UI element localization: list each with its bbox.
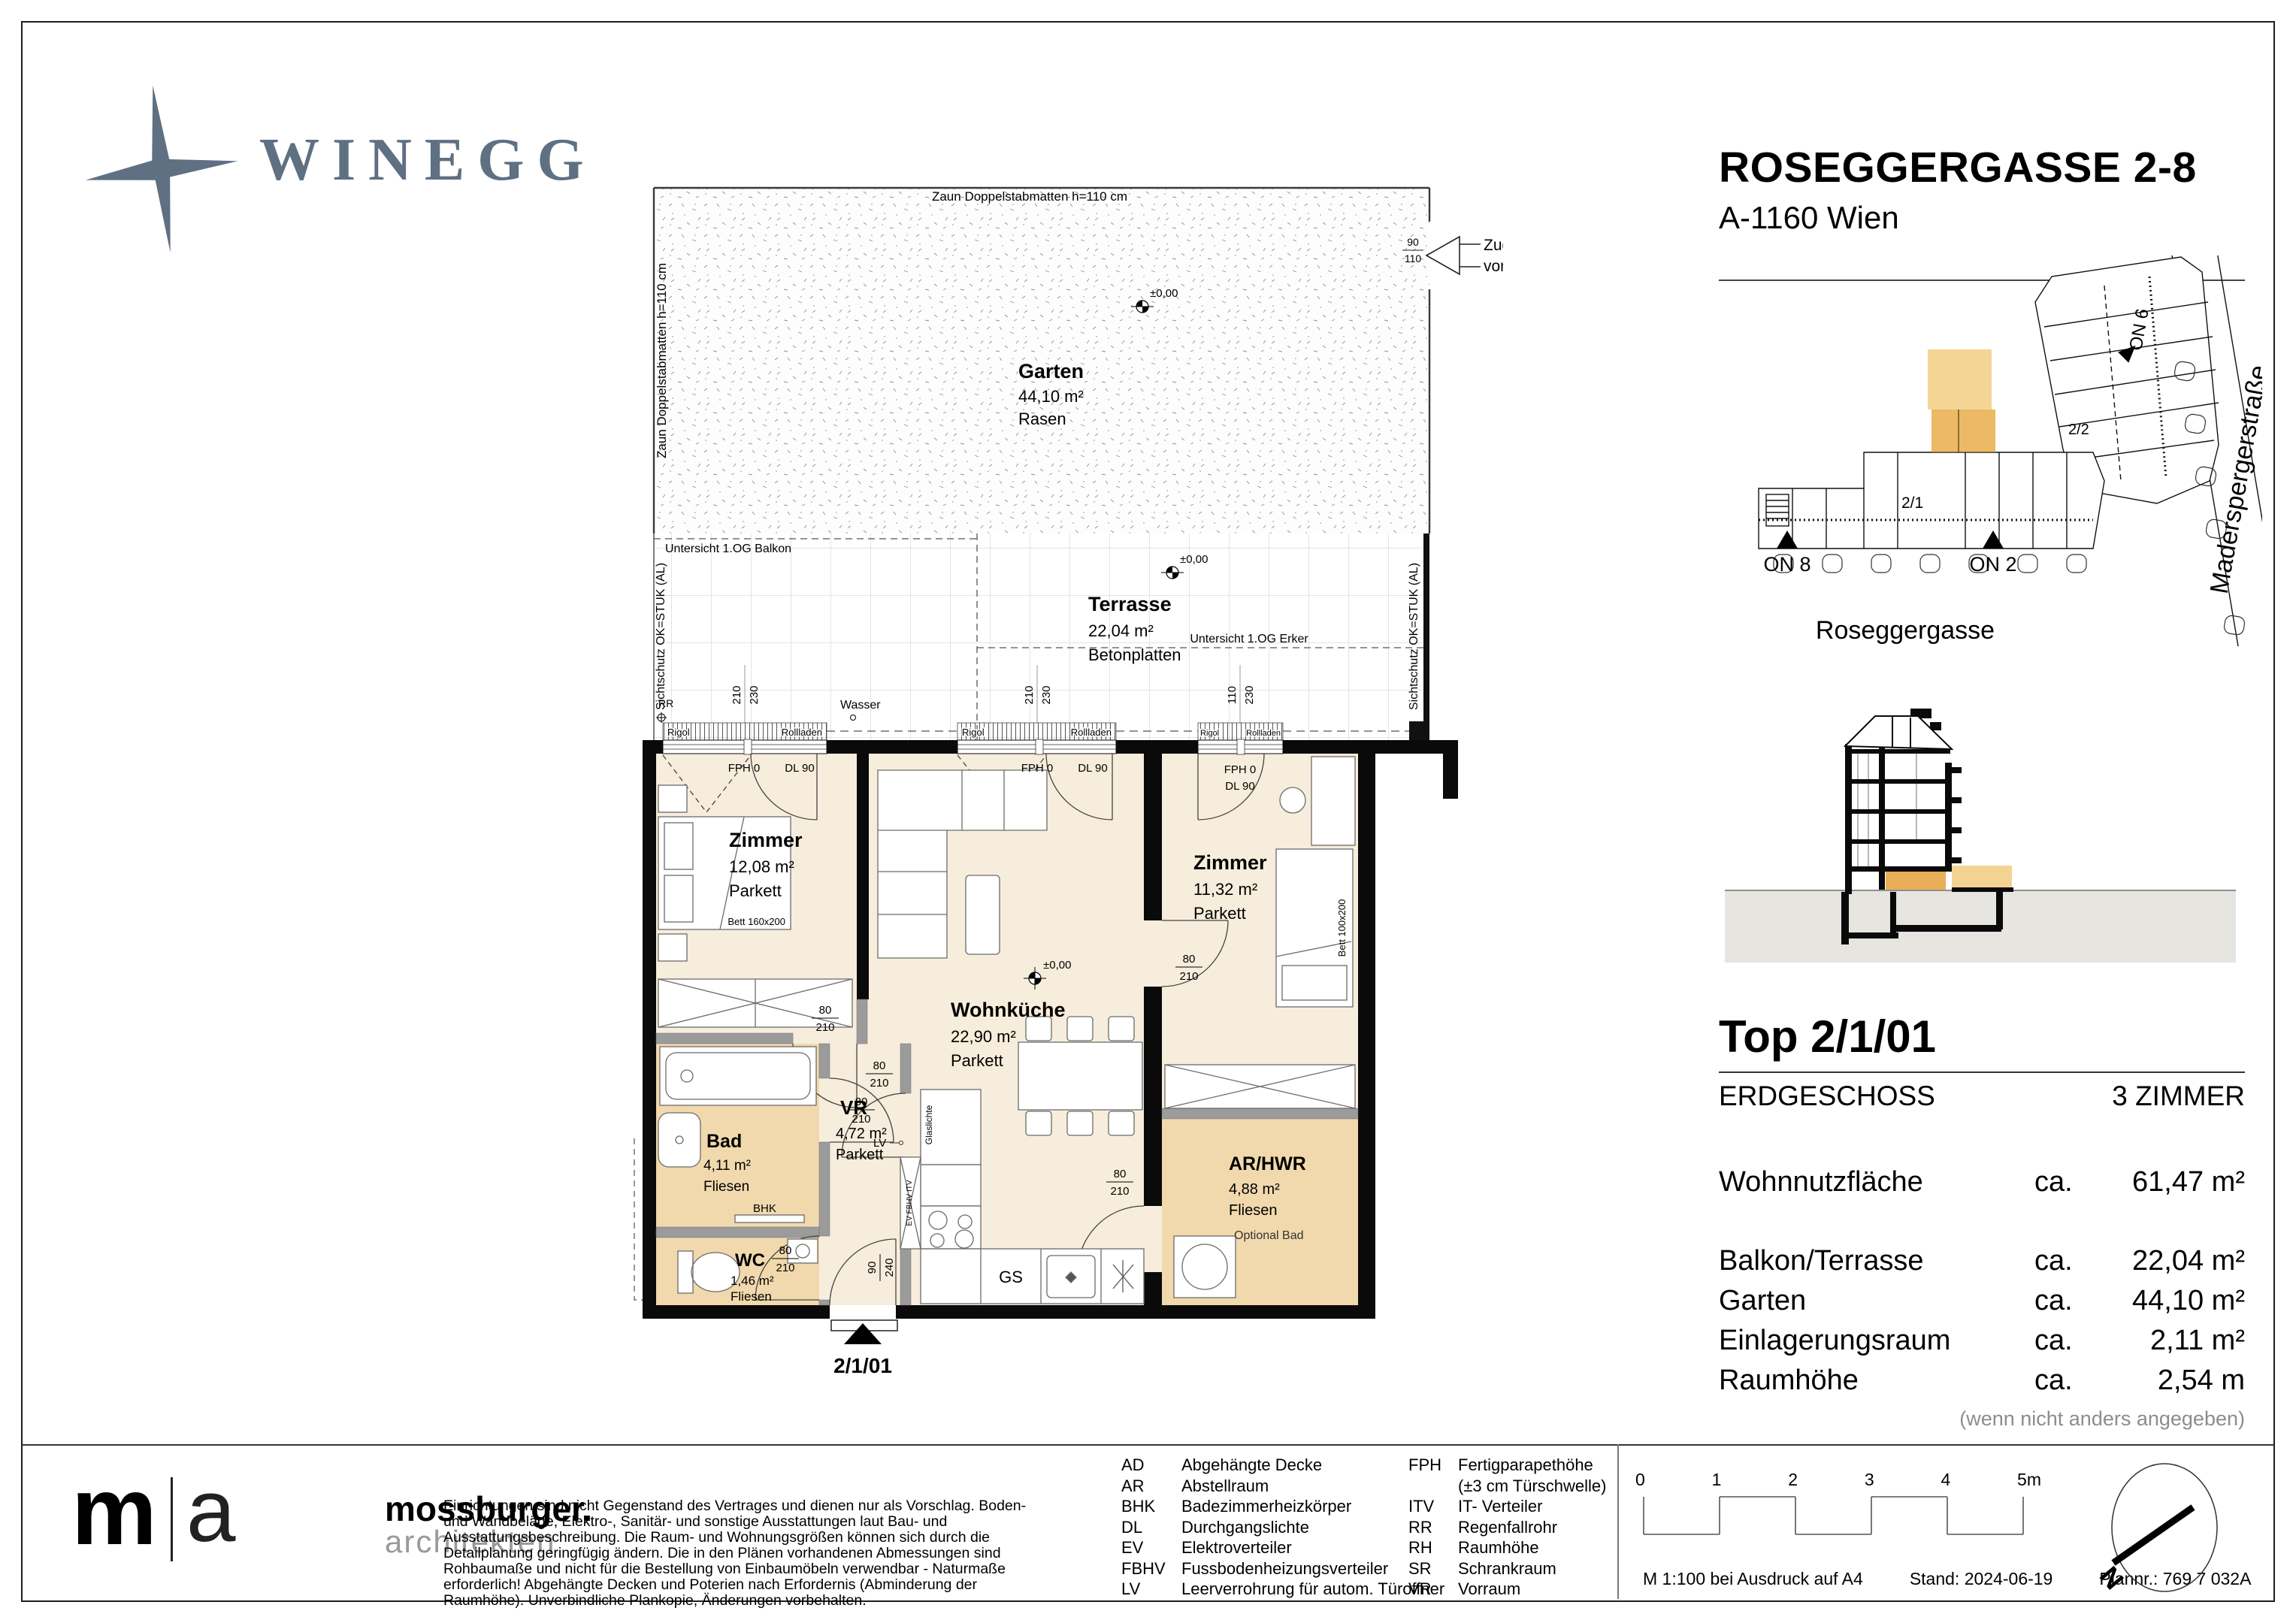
info-label: Balkon/Terrasse xyxy=(1719,1245,2034,1277)
site-unit-garden-highlight xyxy=(1928,349,1992,410)
lv-label: LV xyxy=(873,1137,886,1150)
access-dim-bottom: 110 xyxy=(1405,252,1422,264)
north-arrow: N xyxy=(2082,1456,2247,1599)
info-ca: ca. xyxy=(2034,1285,2102,1317)
svg-text:80: 80 xyxy=(819,1004,832,1017)
unit-roomcount: 3 ZIMMER xyxy=(2112,1080,2245,1112)
legend-text: Fussbodenheizungsverteiler xyxy=(1181,1558,1388,1579)
info-value: 2,54 m xyxy=(2102,1365,2245,1397)
svg-text:210: 210 xyxy=(870,1077,888,1090)
fph-label: FPH 0 xyxy=(1021,762,1054,775)
architect-logo: m a xyxy=(71,1474,235,1561)
info-label: Garten xyxy=(1719,1285,2034,1317)
site-unit21-label: 2/1 xyxy=(1901,494,1923,512)
sichtschutz-left-label: Sichtschutz OK=STUK (AL) xyxy=(655,563,667,710)
z2-surface: Parkett xyxy=(1193,904,1246,923)
rigol-label: Rigol xyxy=(667,727,690,738)
project-title: ROSEGGERGASSE 2-8 xyxy=(1719,143,2245,192)
untersicht-erker-label: Untersicht 1.OG Erker xyxy=(1190,633,1308,645)
info-value: 2,11 m² xyxy=(2102,1325,2245,1357)
info-value: 44,10 m² xyxy=(2102,1285,2245,1317)
z1-surface: Parkett xyxy=(729,881,782,900)
svg-text:230: 230 xyxy=(1243,685,1256,704)
section-unit-highlight xyxy=(1886,871,1946,890)
info-ca: ca. xyxy=(2034,1365,2102,1397)
terrace-title: Terrasse xyxy=(1088,593,1172,615)
wk-surface: Parkett xyxy=(951,1051,1003,1070)
legend-text: Badezimmerheizkörper xyxy=(1181,1496,1351,1517)
svg-text:80: 80 xyxy=(1114,1168,1127,1180)
legend-abbr: RR xyxy=(1408,1517,1458,1538)
architect-logo-a: a xyxy=(186,1474,236,1549)
svg-text:210: 210 xyxy=(1179,970,1198,983)
ar-title: AR/HWR xyxy=(1229,1153,1306,1174)
on2-label: ON 2 xyxy=(1969,553,2016,576)
unit-info-panel: Top 2/1/01 ERDGESCHOSS 3 ZIMMER Wohnnutz… xyxy=(1719,1011,2245,1431)
garden-title: Garten xyxy=(1018,360,1084,382)
legend-text: Vorraum xyxy=(1458,1579,1520,1600)
svg-text:RR: RR xyxy=(658,697,673,709)
legend-abbr: VR xyxy=(1408,1579,1458,1600)
wk-level-label: ±0,00 xyxy=(1043,959,1071,972)
shaft-label: EV FBHV ITV xyxy=(906,1180,914,1226)
legend-abbr: RH xyxy=(1408,1537,1458,1558)
wc-title: WC xyxy=(735,1250,765,1271)
scale-tick-label: 3 xyxy=(1865,1470,1874,1490)
legend-column-1: ADAbgehängte Decke ARAbstellraum BHKBade… xyxy=(1121,1455,1444,1600)
legend-text: Durchgangslichte xyxy=(1181,1517,1309,1538)
legend-abbr: LV xyxy=(1121,1579,1181,1600)
untersicht-balkon-label: Untersicht 1.OG Balkon xyxy=(665,543,791,555)
section-terrace-highlight xyxy=(1952,866,2012,890)
scale-tick-label: 5m xyxy=(2017,1470,2041,1490)
svg-text:80: 80 xyxy=(855,1096,868,1108)
svg-text:210: 210 xyxy=(731,685,743,704)
svg-text:90: 90 xyxy=(866,1262,879,1274)
wc-size: 1,46 m² xyxy=(731,1274,774,1288)
fph-label: FPH 0 xyxy=(728,762,761,775)
bhk-label: BHK xyxy=(753,1202,776,1215)
bad-surface: Fliesen xyxy=(703,1179,749,1195)
desk xyxy=(1311,757,1355,845)
plan-sheet: WINEGG ROSEGGERGASSE 2-8 A-1160 Wien xyxy=(0,0,2296,1623)
legend-text: Schrankraum xyxy=(1458,1558,1556,1579)
dl-label: DL 90 xyxy=(785,762,814,775)
wk-title: Wohnküche xyxy=(951,999,1066,1021)
print-scale: M 1:100 bei Ausdruck auf A4 xyxy=(1643,1569,1863,1589)
svg-text:80: 80 xyxy=(1183,953,1196,966)
svg-text:240: 240 xyxy=(883,1258,896,1277)
legend-abbr: FBHV xyxy=(1121,1558,1181,1579)
garden-level-label: ±0,00 xyxy=(1150,287,1178,300)
kitchen-counter xyxy=(921,1249,1144,1304)
footer-divider xyxy=(1617,1444,1619,1599)
scale-bar xyxy=(1643,1495,2034,1537)
terrace-size: 22,04 m² xyxy=(1088,621,1154,640)
dl-label: DL 90 xyxy=(1078,762,1107,775)
access-dim-top: 90 xyxy=(1407,236,1419,248)
project-city: A-1160 Wien xyxy=(1719,200,2245,236)
svg-text:210: 210 xyxy=(1023,685,1036,704)
dl-label: DL 90 xyxy=(1225,780,1254,793)
footer-rule xyxy=(23,1444,2273,1446)
svg-text:210: 210 xyxy=(776,1262,794,1274)
brand-wordmark: WINEGG xyxy=(259,126,597,195)
north-label: N xyxy=(2094,1561,2130,1595)
terrace-area: Untersicht 1.OG Balkon Untersicht 1.OG E… xyxy=(654,533,1429,740)
unit-number-label: 2/1/01 xyxy=(833,1354,892,1377)
legend-text: Leerverrohrung für autom. Türoffner xyxy=(1181,1579,1444,1600)
legend-text: Raumhöhe xyxy=(1458,1537,1539,1558)
ar-surface: Fliesen xyxy=(1229,1202,1277,1219)
terrace-surface: Betonplatten xyxy=(1088,645,1181,664)
bad-title: Bad xyxy=(706,1131,742,1152)
info-label: Einlagerungsraum xyxy=(1719,1325,2034,1357)
scale-tick-label: 4 xyxy=(1941,1470,1950,1490)
info-value: 61,47 m² xyxy=(2102,1166,2245,1198)
glaslichte-label: Glaslichte xyxy=(924,1105,934,1144)
access-label-1: Zugang Garten xyxy=(1484,237,1503,254)
wk-size: 22,90 m² xyxy=(951,1027,1016,1046)
legend-abbr: AD xyxy=(1121,1455,1181,1476)
legend-text: IT- Verteiler xyxy=(1458,1496,1542,1517)
info-label: Raumhöhe xyxy=(1719,1365,2034,1397)
garden-area: Zaun Doppelstabmatten h=110 cm Zaun Dopp… xyxy=(654,188,1503,533)
access-label-2: vom Innenhof xyxy=(1484,258,1503,275)
scale-tick-label: 0 xyxy=(1635,1470,1645,1490)
fph-label: FPH 0 xyxy=(1224,763,1257,776)
architect-logo-m: m xyxy=(71,1474,157,1549)
legend-abbr: EV xyxy=(1121,1537,1181,1558)
legend-text: Elektroverteiler xyxy=(1181,1537,1292,1558)
bad-size: 4,11 m² xyxy=(703,1158,751,1174)
info-label: Wohnnutzfläche xyxy=(1719,1166,2034,1198)
rigol-label: Rigol xyxy=(962,727,985,738)
coffee-table xyxy=(966,875,1000,954)
legend-text: Abstellraum xyxy=(1181,1476,1269,1497)
legend-column-2: FPHFertigparapethöhe (±3 cm Türschwelle)… xyxy=(1408,1455,1606,1600)
floor-plan: Zaun Doppelstabmatten h=110 cm Zaun Dopp… xyxy=(631,169,1503,1401)
building-section xyxy=(1721,703,2240,966)
garden-surface: Rasen xyxy=(1018,410,1066,428)
ar-size: 4,88 m² xyxy=(1229,1181,1280,1198)
svg-text:80: 80 xyxy=(873,1059,886,1072)
scale-tick-label: 1 xyxy=(1712,1470,1722,1490)
architect-logo-bar xyxy=(171,1477,173,1561)
print-date: Stand: 2024-06-19 xyxy=(1910,1569,2053,1589)
bhk-radiator xyxy=(735,1215,804,1223)
legend-abbr: DL xyxy=(1121,1517,1181,1538)
fence-left-label: Zaun Doppelstabmatten h=110 cm xyxy=(655,263,669,458)
toilet xyxy=(678,1251,693,1293)
z2-size: 11,32 m² xyxy=(1193,880,1257,899)
rigol-label: Rigol xyxy=(1200,729,1219,738)
info-ca: ca. xyxy=(2034,1245,2102,1277)
legend-abbr: SR xyxy=(1408,1558,1458,1579)
neighbour-outline xyxy=(634,1138,643,1300)
site-plan: ON 8 ON 2 ON 6 Roseggergasse Madersperge… xyxy=(1751,255,2262,676)
legend-text: Fertigparapethöhe xyxy=(1458,1455,1593,1476)
legend-abbr: AR xyxy=(1121,1476,1181,1497)
on8-label: ON 8 xyxy=(1763,553,1810,576)
svg-text:110: 110 xyxy=(1226,686,1239,704)
legend-text: Abgehängte Decke xyxy=(1181,1455,1322,1476)
garden-size: 44,10 m² xyxy=(1018,387,1084,406)
info-ca: ca. xyxy=(2034,1166,2102,1198)
site-unit22-label: 2/2 xyxy=(2068,422,2089,438)
dining-table xyxy=(1018,1042,1142,1110)
sichtschutz-right-label: Sichtschutz OK=STUK (AL) xyxy=(1408,563,1420,710)
z2-title: Zimmer xyxy=(1193,851,1267,874)
street-main-label: Roseggergasse xyxy=(1816,616,1995,645)
info-value: 22,04 m² xyxy=(2102,1245,2245,1277)
desk-chair xyxy=(1280,787,1305,813)
legend-abbr: FPH xyxy=(1408,1455,1458,1476)
fence-top-label: Zaun Doppelstabmatten h=110 cm xyxy=(932,189,1127,204)
wc-surface: Fliesen xyxy=(731,1289,772,1304)
gs-label: GS xyxy=(999,1268,1023,1286)
rollladen-label: Rollladen xyxy=(782,727,822,738)
svg-text:210: 210 xyxy=(1110,1185,1129,1198)
scale-tick-label: 2 xyxy=(1788,1470,1798,1490)
svg-text:210: 210 xyxy=(852,1113,870,1126)
legend-abbr: ITV xyxy=(1408,1496,1458,1517)
z1-size: 12,08 m² xyxy=(729,857,794,876)
unit-title-rule xyxy=(1719,1071,2245,1073)
legend-text: Regenfallrohr xyxy=(1458,1517,1557,1538)
disclaimer-text: Einrichtungen sind nicht Gegenstand des … xyxy=(443,1498,1037,1609)
legend-abbr xyxy=(1408,1476,1458,1497)
scale-bar-labels: 0 1 2 3 4 5m xyxy=(1635,1470,2041,1490)
svg-text:80: 80 xyxy=(779,1244,792,1257)
winegg-logo-icon xyxy=(71,79,252,259)
legend-abbr: BHK xyxy=(1121,1496,1181,1517)
info-note: (wenn nicht anders angegeben) xyxy=(1719,1407,2245,1431)
z1-title: Zimmer xyxy=(729,829,803,851)
svg-text:210: 210 xyxy=(815,1021,834,1034)
rollladen-label: Rollladen xyxy=(1246,729,1281,738)
unit-floor: ERDGESCHOSS xyxy=(1719,1080,1935,1112)
legend-text: (±3 cm Türschwelle) xyxy=(1458,1476,1606,1497)
z1-bed-label: Bett 160x200 xyxy=(728,916,785,927)
svg-text:Wasser: Wasser xyxy=(840,699,881,712)
site-unit-highlight xyxy=(1931,410,1995,452)
rollladen-label: Rollladen xyxy=(1071,727,1112,738)
z2-bed-label: Bett 100x200 xyxy=(1336,899,1348,957)
unit-title: Top 2/1/01 xyxy=(1719,1011,2245,1062)
terrace-level-label: ±0,00 xyxy=(1180,553,1208,566)
info-ca: ca. xyxy=(2034,1325,2102,1357)
svg-text:230: 230 xyxy=(748,685,761,704)
svg-text:230: 230 xyxy=(1040,685,1053,704)
ar-note: Optional Bad xyxy=(1234,1229,1304,1242)
